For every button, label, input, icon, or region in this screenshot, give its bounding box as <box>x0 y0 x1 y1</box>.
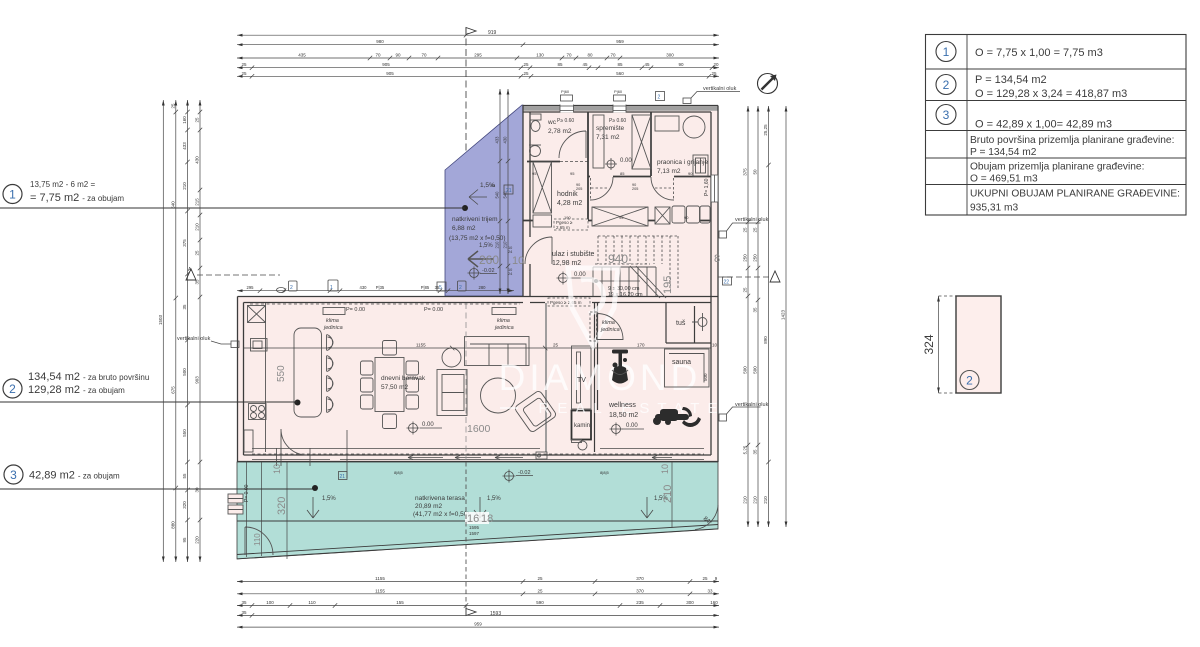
svg-text:959: 959 <box>616 39 624 44</box>
svg-text:24: 24 <box>508 250 512 254</box>
svg-text:P|35: P|35 <box>376 285 385 290</box>
svg-text:18,50 m2: 18,50 m2 <box>609 412 638 419</box>
svg-text:1: 1 <box>330 285 333 291</box>
svg-text:1595: 1595 <box>469 525 480 530</box>
svg-text:210: 210 <box>743 496 748 504</box>
svg-text:25: 25 <box>743 287 748 293</box>
svg-text:8: 8 <box>714 253 720 265</box>
svg-text:45: 45 <box>582 62 588 67</box>
svg-text:70: 70 <box>610 53 616 58</box>
svg-text:160: 160 <box>182 116 187 124</box>
svg-text:jedinica: jedinica <box>600 327 620 333</box>
svg-text:7,13 m2: 7,13 m2 <box>657 168 681 175</box>
svg-text:O = 129,28 x 3,24 = 418,87 m3: O = 129,28 x 3,24 = 418,87 m3 <box>975 88 1127 100</box>
svg-text:280: 280 <box>479 285 487 290</box>
svg-text:natkrivena terasa: natkrivena terasa <box>415 495 465 502</box>
svg-text:95: 95 <box>570 171 575 176</box>
svg-text:1593: 1593 <box>490 611 501 617</box>
svg-text:433: 433 <box>182 142 187 150</box>
svg-text:10: 10 <box>660 464 670 474</box>
svg-text:295: 295 <box>474 53 482 58</box>
svg-text:25: 25 <box>523 71 529 76</box>
svg-text:1503: 1503 <box>158 314 163 325</box>
svg-text:Pgeso ≥ 2,65 m: Pgeso ≥ 2,65 m <box>550 300 582 305</box>
svg-text:100: 100 <box>266 600 274 605</box>
svg-text:1,5%: 1,5% <box>322 496 336 502</box>
svg-text:590: 590 <box>536 600 544 605</box>
svg-text:wellness: wellness <box>608 402 636 409</box>
svg-text:85: 85 <box>620 171 625 176</box>
svg-text:P= 0.00: P= 0.00 <box>346 307 365 313</box>
svg-text:160: 160 <box>710 600 718 605</box>
svg-text:praonica i grijanje: praonica i grijanje <box>657 159 708 166</box>
svg-text:130: 130 <box>536 53 544 58</box>
svg-text:95: 95 <box>182 537 187 543</box>
svg-text:1600: 1600 <box>467 423 491 435</box>
svg-text:25: 25 <box>195 250 200 256</box>
svg-text:210: 210 <box>495 241 500 249</box>
svg-text:250: 250 <box>743 254 748 262</box>
svg-text:890: 890 <box>763 336 768 344</box>
svg-text:500: 500 <box>182 368 187 376</box>
svg-text:10: 10 <box>712 343 718 348</box>
svg-text:980: 980 <box>376 39 384 44</box>
svg-text:95: 95 <box>532 171 537 176</box>
svg-text:25: 25 <box>537 576 543 581</box>
svg-text:235: 235 <box>636 600 644 605</box>
svg-text:P= 1,60: P= 1,60 <box>704 178 710 196</box>
svg-text:300: 300 <box>686 600 694 605</box>
svg-text:500: 500 <box>703 373 708 381</box>
svg-text:25: 25 <box>553 343 559 348</box>
svg-text:(41,77 m2 x f=0,50): (41,77 m2 x f=0,50) <box>413 511 470 518</box>
svg-text:85: 85 <box>617 62 623 67</box>
svg-text:433: 433 <box>495 136 500 144</box>
svg-text:500: 500 <box>743 366 748 374</box>
svg-text:375: 375 <box>743 168 748 176</box>
svg-text:6,88 m2: 6,88 m2 <box>452 225 476 232</box>
svg-text:210: 210 <box>662 485 674 503</box>
svg-text:110: 110 <box>253 533 262 546</box>
svg-text:25: 25 <box>702 576 708 581</box>
svg-text:25: 25 <box>753 227 758 233</box>
svg-text:sauna: sauna <box>672 359 691 366</box>
svg-text:klima: klima <box>326 318 339 324</box>
svg-text:0.00: 0.00 <box>422 422 434 428</box>
svg-text:30: 30 <box>195 487 200 493</box>
svg-text:55: 55 <box>182 473 187 479</box>
svg-text:vertikalni oluk: vertikalni oluk <box>735 402 769 408</box>
svg-text:42,89 m2 - za obujam: 42,89 m2 - za obujam <box>29 470 120 482</box>
svg-text:80: 80 <box>587 53 593 58</box>
svg-text:vertikalni oluk: vertikalni oluk <box>177 336 211 342</box>
svg-text:215: 215 <box>195 198 200 206</box>
svg-text:jedinica: jedinica <box>323 325 343 331</box>
svg-text:1,5%: 1,5% <box>487 496 501 502</box>
svg-text:P|60: P|60 <box>614 89 623 94</box>
svg-text:vertikalni oluk: vertikalni oluk <box>703 86 737 92</box>
svg-text:45: 45 <box>644 62 650 67</box>
svg-text:20,89 m2: 20,89 m2 <box>415 503 442 510</box>
svg-text:TV: TV <box>577 377 586 384</box>
svg-text:25: 25 <box>523 62 529 67</box>
svg-text:560: 560 <box>616 71 624 76</box>
svg-text:18: 18 <box>481 513 493 525</box>
svg-text:935,31 m3: 935,31 m3 <box>970 203 1018 214</box>
svg-text:134,54 m2 - za bruto površinu: 134,54 m2 - za bruto površinu <box>28 371 149 383</box>
svg-text:25: 25 <box>743 227 748 233</box>
svg-text:4,28 m2: 4,28 m2 <box>557 200 582 207</box>
svg-text:25: 25 <box>711 71 717 76</box>
svg-text:33: 33 <box>707 588 713 593</box>
svg-text:20: 20 <box>713 62 719 67</box>
svg-text:375: 375 <box>182 239 187 247</box>
svg-text:90: 90 <box>688 171 693 176</box>
svg-text:205: 205 <box>632 187 638 191</box>
svg-text:70: 70 <box>375 53 381 58</box>
svg-text:85: 85 <box>557 62 563 67</box>
svg-text:90: 90 <box>395 53 401 58</box>
svg-text:905: 905 <box>386 71 394 76</box>
svg-text:1597: 1597 <box>469 531 480 536</box>
svg-text:25: 25 <box>195 117 200 123</box>
svg-text:324: 324 <box>922 334 936 354</box>
svg-text:= 7,75 m2 - za obujam: = 7,75 m2 - za obujam <box>30 192 124 204</box>
svg-text:P≥ 0.60: P≥ 0.60 <box>557 118 574 124</box>
svg-text:ulaz i stubište: ulaz i stubište <box>552 251 595 258</box>
svg-text:170: 170 <box>637 343 645 348</box>
svg-text:210: 210 <box>753 496 758 504</box>
svg-text:25: 25 <box>170 103 175 109</box>
svg-text:540: 540 <box>170 201 175 209</box>
svg-text:210: 210 <box>763 496 768 504</box>
svg-text:540: 540 <box>503 191 508 199</box>
svg-text:210: 210 <box>503 241 508 249</box>
svg-text:2: 2 <box>966 374 973 388</box>
svg-text:550: 550 <box>182 429 187 437</box>
svg-text:10: 10 <box>272 464 282 474</box>
svg-text:tuš: tuš <box>676 320 686 327</box>
svg-text:2: 2 <box>943 78 950 92</box>
svg-text:70: 70 <box>566 53 572 58</box>
svg-text:klima: klima <box>497 318 510 324</box>
svg-text:210: 210 <box>195 223 200 231</box>
svg-text:8|8|5: 8|8|5 <box>394 470 404 475</box>
svg-text:320: 320 <box>276 497 288 515</box>
svg-text:435: 435 <box>298 53 306 58</box>
svg-text:16: 16 <box>467 513 479 525</box>
svg-text:1155: 1155 <box>375 588 385 593</box>
svg-text:8|8|5: 8|8|5 <box>600 470 610 475</box>
svg-text:35: 35 <box>182 304 187 310</box>
svg-text:35: 35 <box>753 449 758 455</box>
svg-text:90: 90 <box>684 215 689 220</box>
svg-text:0.00: 0.00 <box>626 423 638 429</box>
svg-text:jedinica: jedinica <box>494 325 514 331</box>
svg-text:13,75 m2 - 6 m2 =: 13,75 m2 - 6 m2 = <box>30 180 95 189</box>
svg-text:940: 940 <box>608 252 628 266</box>
svg-text:22: 22 <box>724 280 730 286</box>
svg-text:O = 42,89 x 1,00= 42,89 m3: O = 42,89 x 1,00= 42,89 m3 <box>975 119 1112 131</box>
svg-text:25: 25 <box>241 62 247 67</box>
svg-text:300: 300 <box>666 53 674 58</box>
svg-text:wc: wc <box>547 119 557 126</box>
svg-text:25: 25 <box>537 588 543 593</box>
svg-text:57,50 m2: 57,50 m2 <box>381 384 408 391</box>
svg-text:250: 250 <box>753 254 758 262</box>
svg-text:24: 24 <box>508 272 512 276</box>
svg-text:Obujam prizemlja planirane gra: Obujam prizemlja planirane građevine: <box>970 162 1144 173</box>
svg-text:O = 469,51 m3: O = 469,51 m3 <box>970 174 1038 185</box>
svg-text:7,31 m2: 7,31 m2 <box>596 134 620 141</box>
svg-text:10: 10 <box>512 255 524 267</box>
svg-text:35: 35 <box>753 307 758 313</box>
svg-text:1,5%: 1,5% <box>479 243 493 249</box>
svg-text:260: 260 <box>479 253 499 267</box>
svg-text:195: 195 <box>662 276 674 294</box>
svg-text:1423: 1423 <box>781 309 786 320</box>
svg-text:155: 155 <box>396 600 404 605</box>
svg-text:905: 905 <box>382 62 390 67</box>
svg-text:95: 95 <box>619 215 624 220</box>
svg-text:DIAMOND: DIAMOND <box>499 357 702 398</box>
svg-text:Bruto površina prizemlja plani: Bruto površina prizemlja planirane građe… <box>970 135 1174 146</box>
svg-text:370: 370 <box>636 576 644 581</box>
svg-text:220: 220 <box>195 536 200 544</box>
svg-text:210: 210 <box>182 182 187 190</box>
svg-text:25: 25 <box>241 71 247 76</box>
svg-text:430: 430 <box>360 285 368 290</box>
svg-text:P = 134,54 m2: P = 134,54 m2 <box>975 74 1047 86</box>
svg-text:2: 2 <box>9 382 16 396</box>
svg-text:70: 70 <box>421 53 427 58</box>
svg-text:O = 7,75 x 1,00 = 7,75 m3: O = 7,75 x 1,00 = 7,75 m3 <box>975 47 1103 59</box>
svg-text:1: 1 <box>943 45 950 59</box>
svg-text:2: 2 <box>290 285 293 291</box>
svg-text:P|85: P|85 <box>421 285 430 290</box>
svg-text:P = 134,54 m2: P = 134,54 m2 <box>970 147 1037 158</box>
svg-text:1155: 1155 <box>375 576 385 581</box>
svg-text:natkriveni trijem: natkriveni trijem <box>452 216 498 223</box>
svg-text:90: 90 <box>678 62 684 67</box>
svg-text:500: 500 <box>753 366 758 374</box>
svg-text:dnevni boravak: dnevni boravak <box>381 375 426 382</box>
svg-text:spremište: spremište <box>596 125 625 132</box>
svg-text:540: 540 <box>495 191 500 199</box>
svg-text:3: 3 <box>943 108 950 122</box>
svg-text:UKUPNI OBUJAM PLANIRANE GRAĐEV: UKUPNI OBUJAM PLANIRANE GRAĐEVINE: <box>970 189 1180 200</box>
svg-text:kamin: kamin <box>574 423 590 429</box>
svg-text:(13,75 m2 x f=0,50): (13,75 m2 x f=0,50) <box>449 235 506 242</box>
svg-text:2,65 m: 2,65 m <box>556 225 570 230</box>
svg-text:0.00: 0.00 <box>620 158 632 164</box>
svg-text:5,25: 5,25 <box>743 445 748 454</box>
svg-text:25,25: 25,25 <box>763 124 768 136</box>
svg-text:320: 320 <box>182 501 187 509</box>
svg-text:1: 1 <box>9 188 16 202</box>
svg-text:205: 205 <box>576 187 582 191</box>
svg-text:959: 959 <box>474 622 482 627</box>
svg-text:2: 2 <box>658 95 661 101</box>
svg-text:vertikalni oluk: vertikalni oluk <box>735 217 769 223</box>
svg-text:2,78 m2: 2,78 m2 <box>548 128 572 135</box>
svg-text:35: 35 <box>241 600 247 605</box>
svg-text:370: 370 <box>636 588 644 593</box>
svg-text:903: 903 <box>195 376 200 384</box>
svg-text:110: 110 <box>308 600 316 605</box>
svg-text:880: 880 <box>170 521 175 529</box>
svg-text:58: 58 <box>491 184 495 188</box>
svg-text:P= 0.00: P= 0.00 <box>424 307 443 313</box>
svg-text:3: 3 <box>10 468 17 482</box>
svg-text:675: 675 <box>170 386 175 394</box>
svg-text:P|60: P|60 <box>561 89 570 94</box>
svg-text:1155: 1155 <box>416 343 426 348</box>
svg-text:129,28 m2 - za obujam: 129,28 m2 - za obujam <box>28 384 125 396</box>
svg-text:klima: klima <box>602 320 615 326</box>
svg-text:hodnik: hodnik <box>557 191 578 198</box>
svg-text:5: 5 <box>439 285 442 291</box>
svg-text:50: 50 <box>753 169 758 175</box>
svg-text:P≥ 0.60: P≥ 0.60 <box>609 118 626 124</box>
svg-text:430: 430 <box>195 156 200 164</box>
svg-text:35: 35 <box>241 610 247 615</box>
svg-text:2: 2 <box>459 285 462 291</box>
svg-text:21: 21 <box>340 474 346 480</box>
svg-text:295: 295 <box>247 285 255 290</box>
svg-text:430: 430 <box>503 136 508 144</box>
svg-text:550: 550 <box>276 365 287 382</box>
svg-text:P= 0.00: P= 0.00 <box>244 484 250 502</box>
